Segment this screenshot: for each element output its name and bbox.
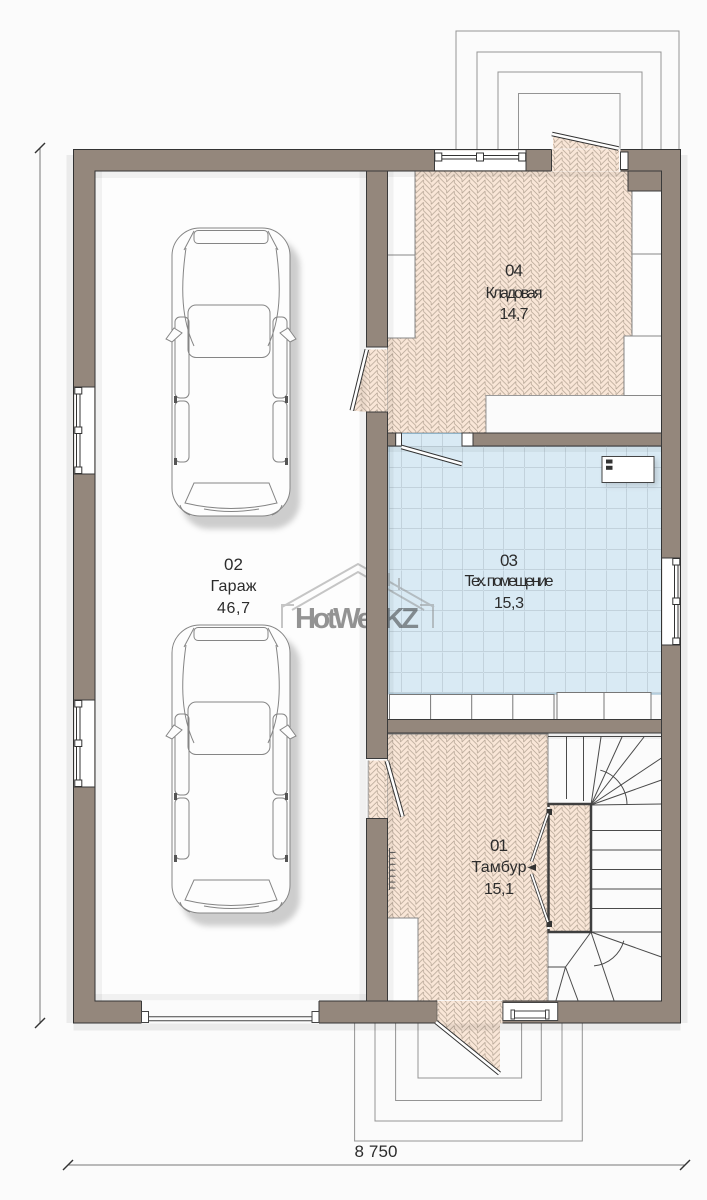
svg-text:15,1: 15,1	[484, 881, 514, 898]
svg-text:Тамбур: Тамбур	[472, 859, 527, 876]
svg-text:14,7: 14,7	[500, 306, 529, 323]
svg-text:Кладовая: Кладовая	[486, 285, 543, 302]
svg-text:03: 03	[500, 551, 518, 570]
svg-text:15,3: 15,3	[494, 595, 524, 612]
svg-text:01: 01	[490, 836, 508, 855]
svg-text:Гараж: Гараж	[211, 578, 257, 595]
svg-text:02: 02	[224, 555, 243, 574]
svg-text:04: 04	[505, 261, 523, 280]
svg-text:8 750: 8 750	[355, 1142, 398, 1161]
svg-text:Тех. помещение: Тех. помещение	[465, 573, 554, 590]
svg-text:46,7: 46,7	[217, 600, 250, 617]
svg-text:HotWell.KZ: HotWell.KZ	[295, 603, 419, 635]
